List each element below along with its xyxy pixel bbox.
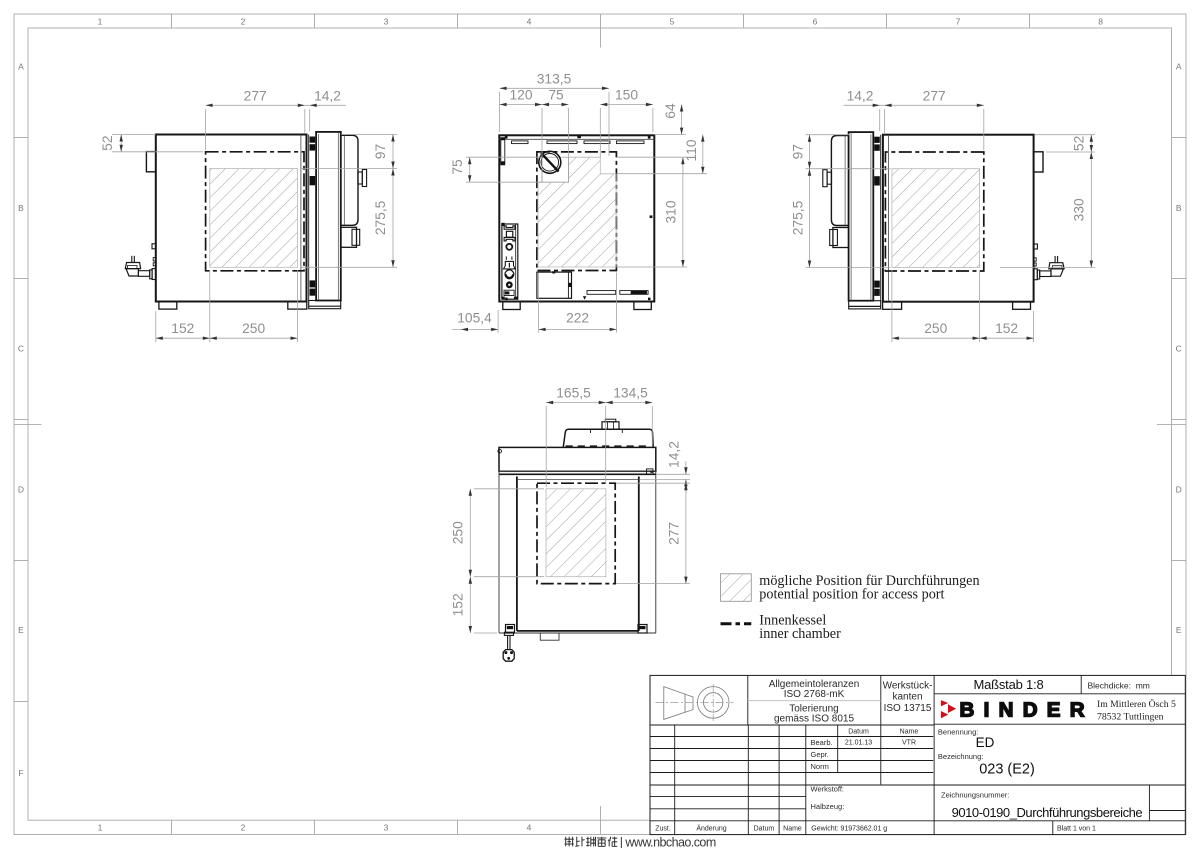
svg-text:75: 75 — [450, 159, 465, 175]
svg-text:21.01.13: 21.01.13 — [845, 740, 872, 747]
svg-text:250: 250 — [242, 321, 265, 336]
svg-text:5: 5 — [670, 17, 675, 27]
svg-text:222: 222 — [566, 311, 589, 326]
svg-text:52: 52 — [100, 135, 115, 150]
svg-text:1: 1 — [98, 17, 103, 27]
svg-text:277: 277 — [244, 88, 267, 103]
svg-text:D: D — [1176, 485, 1182, 495]
svg-text:A: A — [18, 62, 24, 72]
svg-text:150: 150 — [615, 88, 638, 103]
svg-text:120: 120 — [509, 88, 532, 103]
svg-text:gemäss ISO 8015: gemäss ISO 8015 — [774, 714, 854, 725]
svg-text:134,5: 134,5 — [613, 386, 648, 401]
svg-text:Halbzeug:: Halbzeug: — [811, 802, 845, 811]
svg-text:E: E — [1176, 625, 1182, 635]
svg-text:Zeichnungsnummer:: Zeichnungsnummer: — [941, 791, 1009, 800]
svg-text:Benennung:: Benennung: — [938, 728, 978, 737]
svg-text:14,2: 14,2 — [667, 441, 682, 468]
svg-text:ISO 2768-mK: ISO 2768-mK — [784, 689, 845, 700]
svg-text:Werkstück-: Werkstück- — [883, 681, 933, 692]
svg-text:Blechdicke: mm: Blechdicke: mm — [1088, 681, 1150, 691]
svg-text:023 (E2): 023 (E2) — [979, 762, 1035, 778]
svg-text:Bezeichnung:: Bezeichnung: — [938, 752, 983, 761]
svg-text:D: D — [18, 485, 24, 495]
svg-text:Im Mittleren Ösch 5: Im Mittleren Ösch 5 — [1097, 698, 1176, 710]
svg-text:97: 97 — [790, 144, 805, 159]
svg-text:3: 3 — [384, 823, 389, 833]
svg-text:C: C — [18, 344, 24, 354]
svg-text:Gewicht: 91973662.01 g: Gewicht: 91973662.01 g — [811, 825, 887, 832]
svg-text:| www.nbchao.com: | www.nbchao.com — [620, 835, 716, 848]
svg-text:275,5: 275,5 — [790, 200, 805, 235]
svg-text:64: 64 — [663, 103, 678, 119]
svg-text:B: B — [1176, 203, 1182, 213]
svg-text:2: 2 — [241, 823, 246, 833]
svg-text:277: 277 — [667, 522, 682, 545]
svg-text:330: 330 — [1071, 198, 1086, 221]
svg-text:Name: Name — [900, 729, 919, 736]
svg-text:3: 3 — [384, 17, 389, 27]
svg-text:97: 97 — [373, 144, 388, 159]
svg-text:Datum: Datum — [754, 825, 775, 832]
svg-text:Maßstab 1:8: Maßstab 1:8 — [973, 677, 1043, 692]
svg-text:E: E — [18, 625, 24, 635]
svg-text:Zust.: Zust. — [655, 825, 671, 832]
svg-text:Blatt 1 von 1: Blatt 1 von 1 — [1057, 825, 1096, 832]
svg-text:B: B — [18, 203, 24, 213]
svg-text:ED: ED — [976, 735, 995, 750]
svg-text:152: 152 — [995, 321, 1018, 336]
svg-text:277: 277 — [923, 88, 946, 103]
svg-text:F: F — [18, 768, 23, 778]
svg-text:165,5: 165,5 — [556, 386, 591, 401]
svg-text:potential position for access: potential position for access port — [759, 587, 944, 603]
svg-text:Änderung: Änderung — [696, 824, 726, 832]
svg-text:8: 8 — [1098, 17, 1103, 27]
svg-text:7: 7 — [956, 17, 961, 27]
svg-text:A: A — [1176, 62, 1182, 72]
svg-text:152: 152 — [451, 593, 466, 616]
svg-text:Gepr.: Gepr. — [811, 750, 829, 759]
svg-text:250: 250 — [451, 521, 466, 544]
svg-text:kanten: kanten — [892, 692, 922, 703]
svg-text:310: 310 — [663, 200, 678, 223]
svg-text:C: C — [1176, 344, 1182, 354]
svg-text:275,5: 275,5 — [373, 200, 388, 235]
svg-text:6: 6 — [813, 17, 818, 27]
svg-text:313,5: 313,5 — [537, 71, 572, 86]
svg-text:VTR: VTR — [902, 740, 916, 747]
svg-text:Datum: Datum — [848, 729, 869, 736]
svg-text:ISO 13715: ISO 13715 — [884, 703, 932, 714]
svg-text:14,2: 14,2 — [314, 88, 341, 103]
svg-text:14,2: 14,2 — [847, 88, 874, 103]
svg-text:Bearb.: Bearb. — [811, 738, 833, 747]
svg-text:4: 4 — [527, 823, 532, 833]
svg-text:152: 152 — [171, 321, 194, 336]
svg-text:Name: Name — [783, 825, 802, 832]
svg-text:Werkstoff:: Werkstoff: — [811, 785, 844, 794]
svg-text:inner chamber: inner chamber — [759, 626, 841, 642]
svg-text:105,4: 105,4 — [457, 311, 492, 326]
svg-text:4: 4 — [527, 17, 532, 27]
svg-text:9010-0190_Durchführungsbereich: 9010-0190_Durchführungsbereiche — [952, 805, 1143, 820]
svg-text:75: 75 — [548, 88, 564, 103]
svg-text:Norm: Norm — [811, 762, 829, 771]
svg-text:1: 1 — [98, 823, 103, 833]
svg-text:BINDER: BINDER — [960, 699, 1094, 722]
svg-text:250: 250 — [924, 321, 947, 336]
svg-text:110: 110 — [684, 139, 699, 161]
svg-text:52: 52 — [1071, 136, 1086, 151]
svg-text:78532 Tuttlingen: 78532 Tuttlingen — [1097, 712, 1164, 723]
svg-text:2: 2 — [241, 17, 246, 27]
